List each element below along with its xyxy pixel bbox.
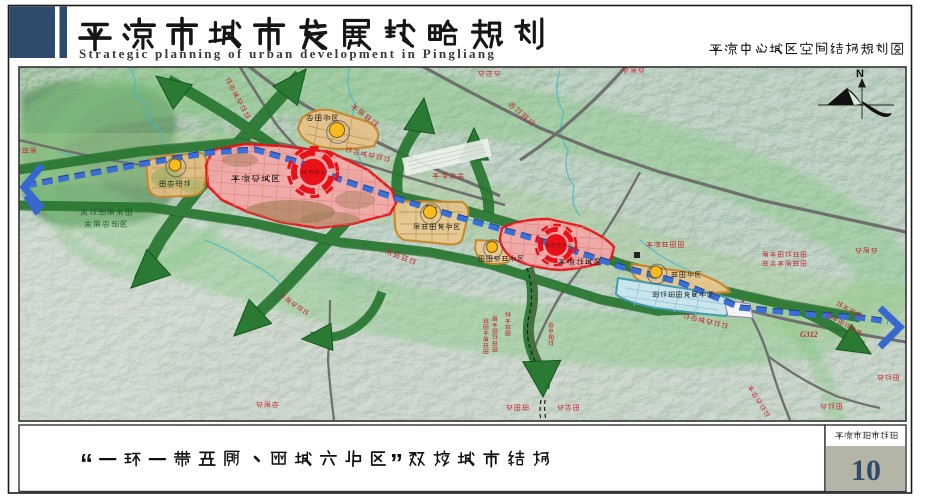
svg-text:G312: G312	[800, 330, 818, 339]
svg-text:N: N	[856, 68, 864, 80]
svg-text:“: “	[80, 448, 93, 478]
svg-text:Strategic planning of urban de: Strategic planning of urban development …	[79, 46, 496, 61]
svg-text:”: ”	[390, 448, 403, 478]
svg-text:10: 10	[851, 454, 881, 487]
